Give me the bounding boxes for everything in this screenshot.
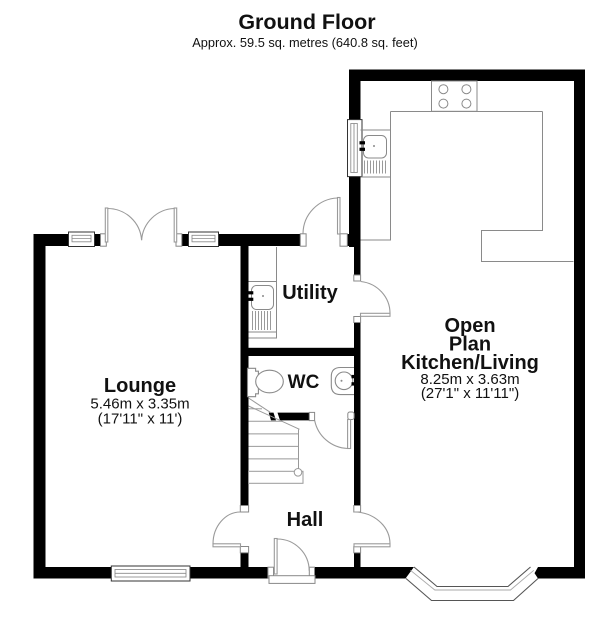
svg-text:Ground Floor: Ground Floor — [238, 10, 376, 34]
svg-text:WC: WC — [288, 372, 320, 393]
svg-text:Approx. 59.5 sq. metres (640.8: Approx. 59.5 sq. metres (640.8 sq. feet) — [192, 35, 417, 50]
svg-text:Utility: Utility — [282, 282, 338, 304]
svg-text:(27'1" x 11'11"): (27'1" x 11'11") — [421, 385, 519, 402]
svg-text:Hall: Hall — [287, 509, 324, 531]
svg-text:(17'11" x 11'): (17'11" x 11') — [98, 411, 183, 428]
svg-text:Lounge: Lounge — [104, 375, 176, 397]
